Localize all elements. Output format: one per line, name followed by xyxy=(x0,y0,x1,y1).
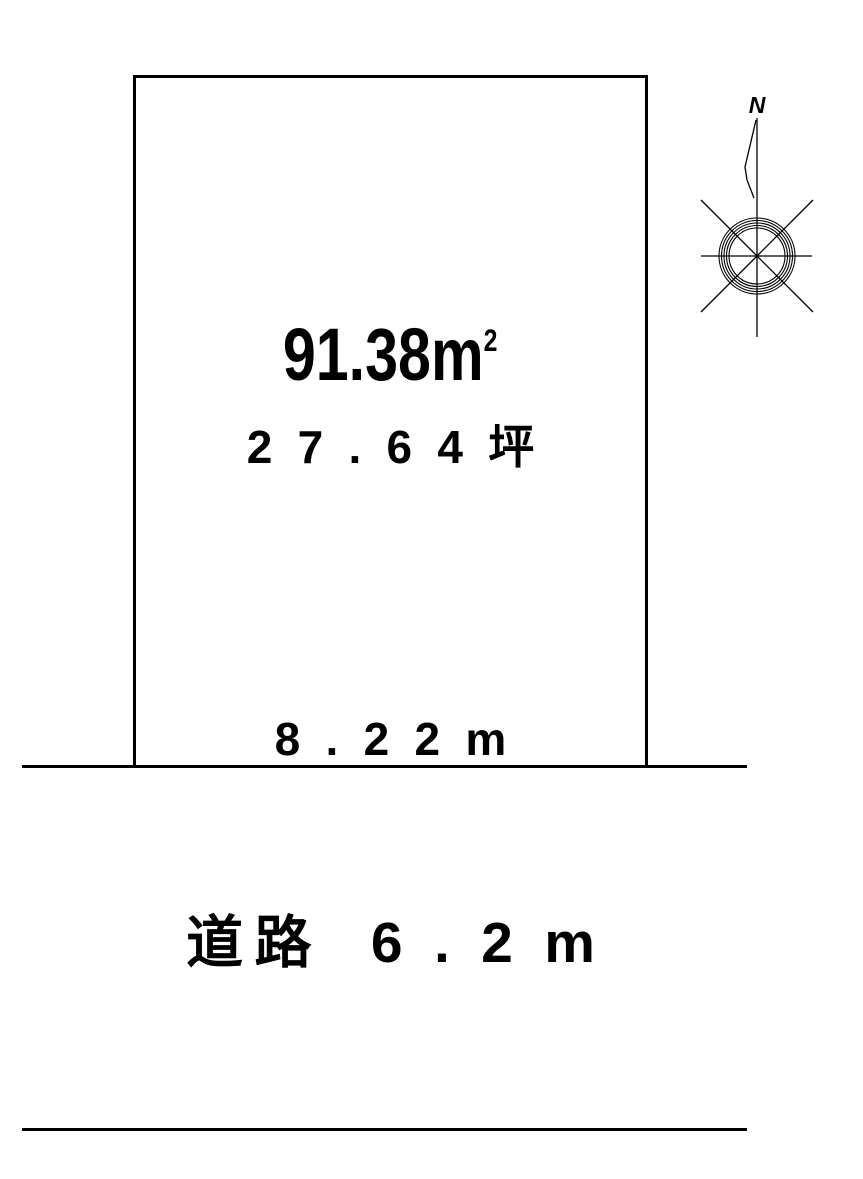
road-label: 道路 xyxy=(186,912,323,975)
road-boundary-line-lower xyxy=(22,1128,747,1131)
road-width-value: 6.2m xyxy=(371,912,626,975)
land-plot-diagram: 91.38m2 27.64坪 8.22m 道路 6.2m xyxy=(0,0,863,1179)
plot-area-sqm-exponent: 2 xyxy=(484,323,498,358)
north-label: N xyxy=(749,92,766,118)
road-boundary-line-upper xyxy=(22,765,747,768)
plot-frontage-dimension: 8.22m xyxy=(133,716,648,762)
plot-area-tsubo: 27.64坪 xyxy=(133,424,648,470)
compass-rose-icon: N xyxy=(695,80,825,340)
compass-needle-icon xyxy=(745,120,756,198)
plot-area-sqm: 91.38m2 xyxy=(133,318,648,392)
plot-area-sqm-value: 91.38 xyxy=(283,313,431,396)
road-label-row: 道路 6.2m xyxy=(133,912,648,975)
plot-area-sqm-text: 91.38m2 xyxy=(283,318,498,392)
plot-area-sqm-unit: m xyxy=(431,313,484,396)
